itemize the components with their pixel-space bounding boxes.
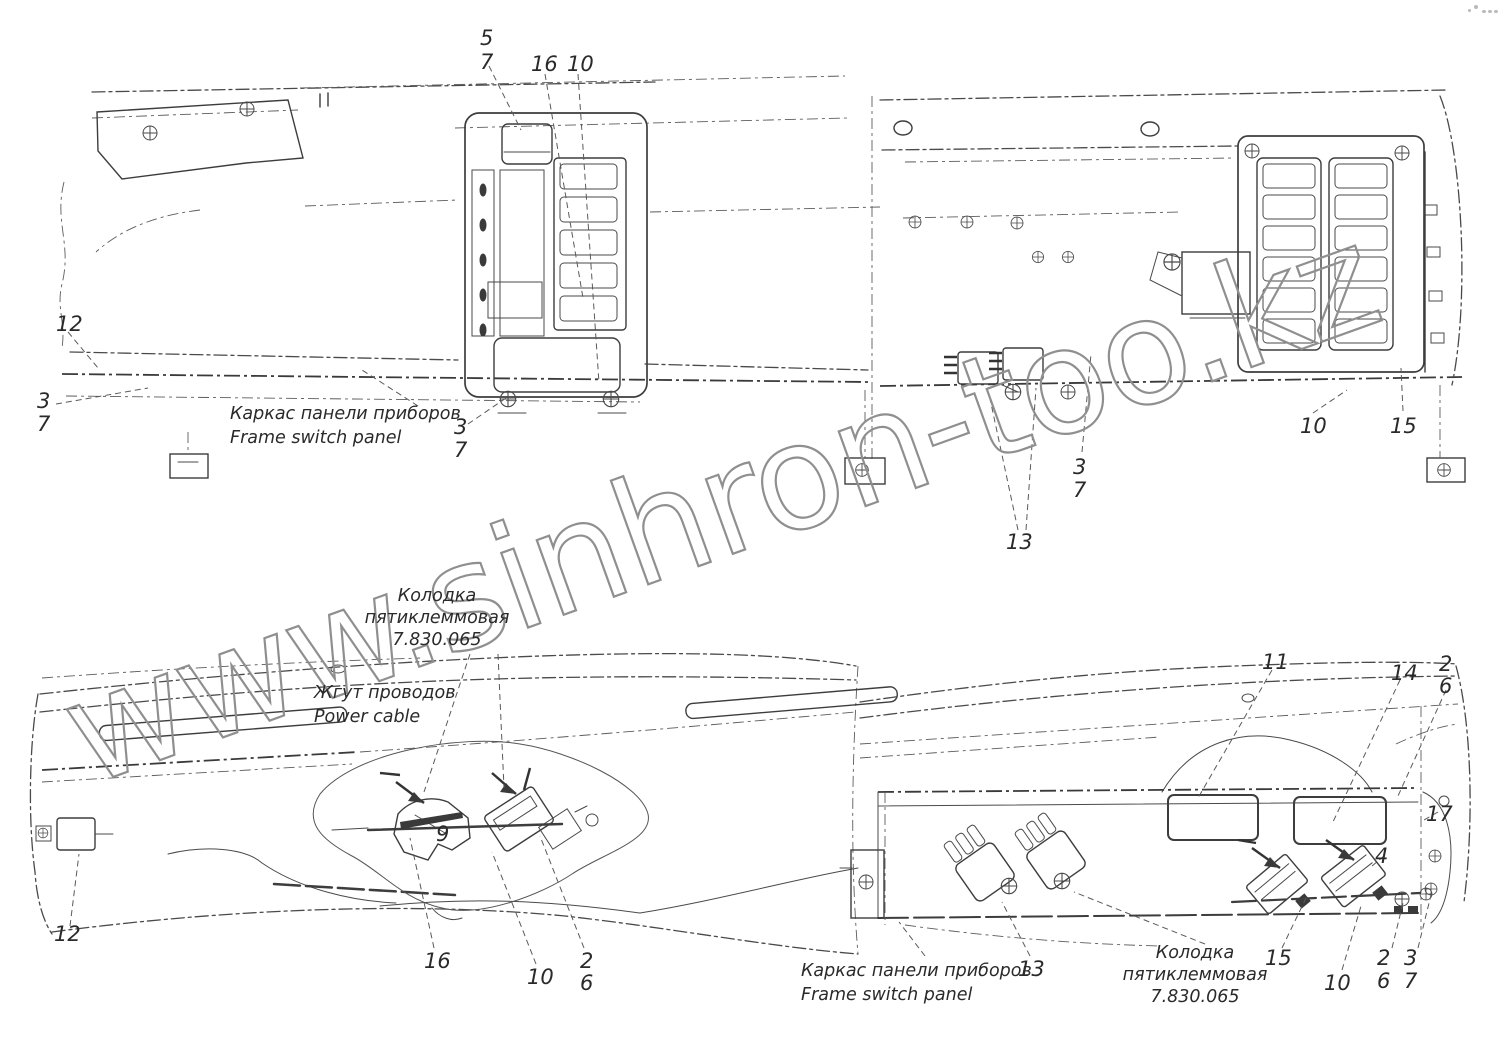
scan-noise — [1468, 5, 1500, 15]
callout-7-topleft: 7 — [37, 412, 50, 436]
annotation-harness: Жгут проводов Power cable — [314, 681, 456, 729]
callout-2-botright: 2 — [1377, 946, 1390, 970]
harness-ru: Жгут проводов — [314, 681, 456, 705]
frame-panel-bottom-ru: Каркас панели приборов — [801, 959, 1032, 983]
diagram-linework: www.sinhron-too.kz — [0, 0, 1500, 1038]
callout-4-right: 4 — [1375, 844, 1388, 868]
callout-14-right: 14 — [1391, 661, 1418, 685]
connector-right-l2: пятиклеммовая — [1120, 964, 1270, 986]
connector-right-l1: Колодка — [1120, 942, 1270, 964]
connector-mid-l2: пятиклеммовая — [352, 607, 522, 629]
frame-panel-top-en: Frame switch panel — [230, 426, 461, 450]
frame-panel-top-ru: Каркас панели приборов — [230, 402, 461, 426]
callout-11-right: 11 — [1262, 650, 1289, 674]
annotation-connector-right: Колодка пятиклеммовая 7.830.065 — [1120, 942, 1270, 1008]
callout-3-mid: 3 — [1073, 455, 1086, 479]
callout-3-topleft: 3 — [37, 389, 50, 413]
callout-9-bottom: 9 — [436, 822, 449, 846]
callout-15-topright: 15 — [1390, 414, 1417, 438]
annotation-connector-mid: Колодка пятиклеммовая 7.830.065 — [352, 585, 522, 651]
callout-7-botright: 7 — [1404, 969, 1417, 993]
callout-7-mid: 7 — [1073, 478, 1086, 502]
watermark-text: www.sinhron-too.kz — [43, 193, 1398, 819]
callout-10-botright: 10 — [1324, 971, 1351, 995]
callout-6-right: 6 — [1439, 674, 1452, 698]
callout-6-bottom: 6 — [580, 971, 593, 995]
callout-2-right: 2 — [1439, 652, 1452, 676]
callout-7-top: 7 — [480, 50, 493, 74]
callout-2-bottom: 2 — [580, 949, 593, 973]
callout-17-right: 17 — [1426, 802, 1453, 826]
harness-en: Power cable — [314, 705, 456, 729]
callout-12-top: 12 — [56, 312, 83, 336]
callout-12-bottom: 12 — [54, 922, 81, 946]
callout-10-topright: 10 — [1300, 414, 1327, 438]
annotation-frame-panel-top: Каркас панели приборов Frame switch pane… — [230, 402, 461, 450]
connector-mid-l3: 7.830.065 — [352, 629, 522, 651]
callout-5-top: 5 — [480, 26, 493, 50]
callout-6-botright: 6 — [1377, 969, 1390, 993]
connector-right-l3: 7.830.065 — [1120, 986, 1270, 1008]
callout-3-botright: 3 — [1404, 946, 1417, 970]
callout-16-bottom: 16 — [424, 949, 451, 973]
callout-10-bottom: 10 — [527, 965, 554, 989]
frame-panel-bottom-en: Frame switch panel — [801, 983, 1032, 1007]
annotation-frame-panel-bottom: Каркас панели приборов Frame switch pane… — [801, 959, 1032, 1007]
bottom-right-view-linework — [840, 662, 1470, 970]
callout-10-top: 10 — [567, 52, 594, 76]
callout-16-top: 16 — [531, 52, 558, 76]
callout-13-top: 13 — [1006, 530, 1033, 554]
diagram-page: www.sinhron-too.kz 5 7 16 10 12 3 7 3 7 … — [0, 0, 1500, 1038]
connector-mid-l1: Колодка — [352, 585, 522, 607]
